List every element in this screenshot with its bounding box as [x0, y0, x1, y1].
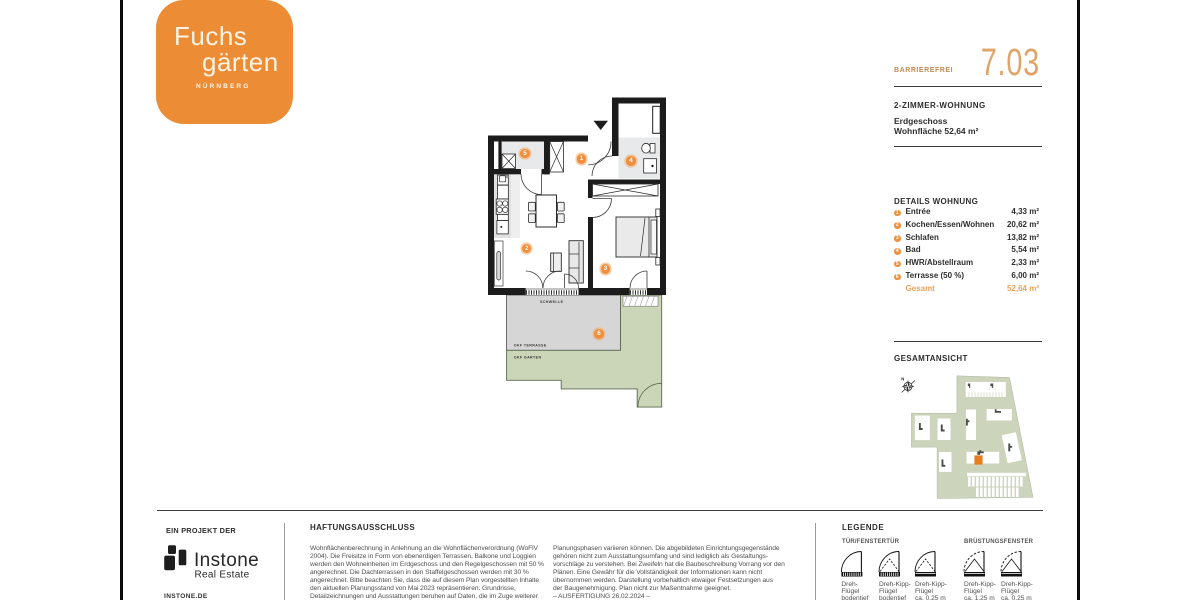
svg-text:Instone: Instone [194, 550, 259, 571]
svg-text:SCHWELLE: SCHWELLE [540, 300, 564, 304]
svg-text:OKF GARTEN: OKF GARTEN [514, 356, 542, 360]
svg-text:OKF TERRASSE: OKF TERRASSE [514, 344, 547, 348]
svg-text:N: N [901, 377, 904, 382]
svg-text:Real Estate: Real Estate [195, 570, 250, 581]
